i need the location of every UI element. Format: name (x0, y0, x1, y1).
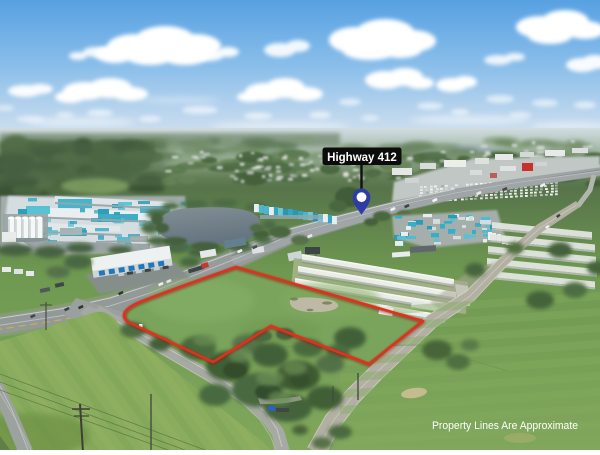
svg-text:Property Lines Are Approximate: Property Lines Are Approximate (432, 420, 578, 432)
svg-text:Highway 412: Highway 412 (327, 152, 397, 164)
